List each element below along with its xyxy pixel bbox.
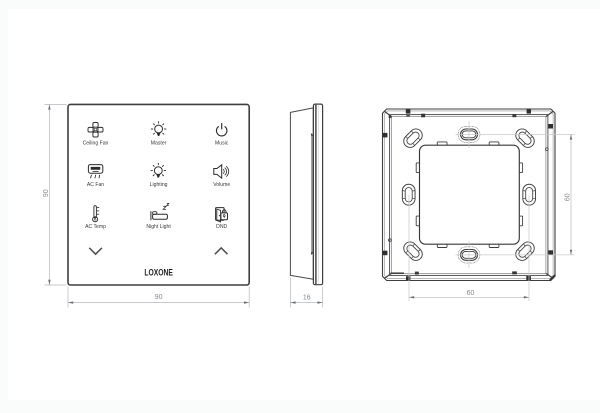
svg-text:60: 60 xyxy=(564,193,571,201)
svg-text:90: 90 xyxy=(43,189,50,197)
svg-text:DND: DND xyxy=(216,224,227,230)
svg-text:LOXONE: LOXONE xyxy=(144,268,173,279)
svg-text:16: 16 xyxy=(303,295,311,302)
svg-text:AC Fan: AC Fan xyxy=(87,182,104,188)
svg-text:Night Light: Night Light xyxy=(146,224,171,230)
svg-text:Lighting: Lighting xyxy=(150,182,168,188)
svg-text:Master: Master xyxy=(151,140,167,146)
svg-text:AC Temp: AC Temp xyxy=(85,224,106,230)
svg-text:Music: Music xyxy=(215,140,229,146)
svg-text:90: 90 xyxy=(155,294,163,301)
svg-text:Volume: Volume xyxy=(213,182,230,188)
svg-text:Ceiling Fan: Ceiling Fan xyxy=(83,140,109,146)
svg-text:60: 60 xyxy=(467,290,475,297)
